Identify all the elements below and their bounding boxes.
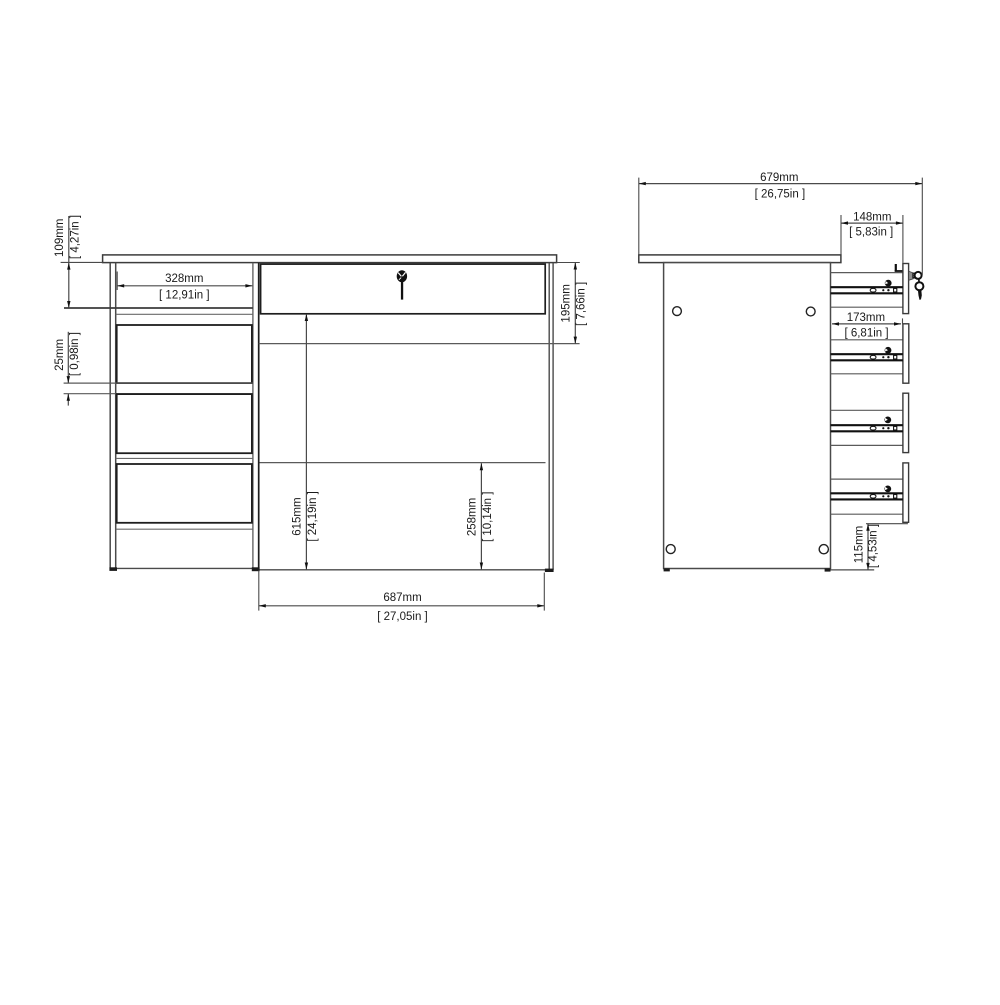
svg-text:195mm: 195mm <box>561 284 573 322</box>
svg-text:[ 5,83in ]: [ 5,83in ] <box>849 226 893 238</box>
svg-text:258mm: 258mm <box>467 498 479 536</box>
svg-text:[ 7,66in ]: [ 7,66in ] <box>575 282 587 326</box>
svg-text:[ 4,27in ]: [ 4,27in ] <box>70 215 82 259</box>
svg-text:109mm: 109mm <box>54 219 66 257</box>
svg-text:[ 26,75in ]: [ 26,75in ] <box>755 188 806 200</box>
svg-text:615mm: 615mm <box>291 497 303 535</box>
svg-text:[ 27,05in ]: [ 27,05in ] <box>377 611 428 623</box>
svg-text:115mm: 115mm <box>854 526 866 564</box>
svg-text:173mm: 173mm <box>847 312 885 324</box>
svg-text:25mm: 25mm <box>54 339 66 371</box>
svg-text:[ 24,19in ]: [ 24,19in ] <box>307 491 319 542</box>
svg-text:[ 4,53in ]: [ 4,53in ] <box>867 524 879 568</box>
svg-text:[ 10,14in ]: [ 10,14in ] <box>482 492 494 543</box>
svg-text:328mm: 328mm <box>165 273 203 285</box>
svg-text:[ 6,81in ]: [ 6,81in ] <box>844 327 888 339</box>
svg-text:[ 0,98in ]: [ 0,98in ] <box>69 332 81 376</box>
svg-text:679mm: 679mm <box>760 172 798 184</box>
svg-text:148mm: 148mm <box>853 212 891 224</box>
svg-text:687mm: 687mm <box>383 592 421 604</box>
svg-text:[ 12,91in ]: [ 12,91in ] <box>159 289 210 301</box>
